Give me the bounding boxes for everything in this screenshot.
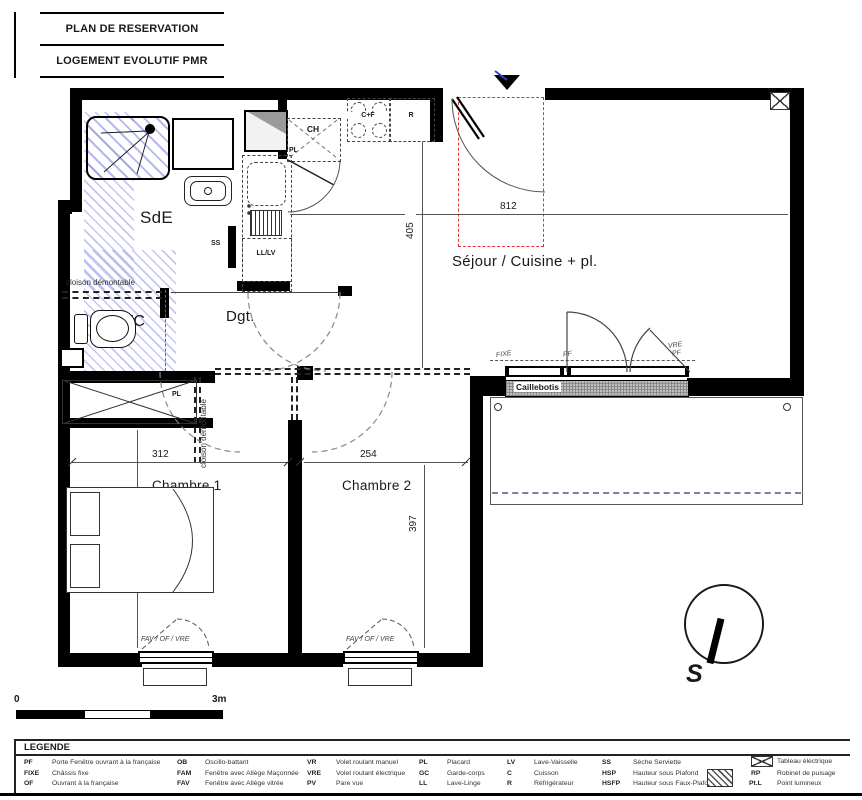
legend-label: Tableau électrique	[777, 758, 832, 765]
legend-label: Volet roulant électrique	[336, 770, 405, 777]
legend-abbr: HSFP	[602, 780, 620, 787]
legend-label: Lave-Vaisselle	[534, 759, 578, 766]
legend-label: Point lumineux	[777, 780, 822, 787]
shower-head	[145, 124, 155, 134]
legend-label: Lave-Linge	[447, 780, 481, 787]
legend-abbr: OF	[24, 780, 33, 787]
legend-label: Garde-corps	[447, 770, 485, 777]
legend-label: Ouvrant à la française	[52, 780, 119, 787]
legend-label: Fenêtre avec Allège vitrée	[205, 780, 284, 787]
plan-linework	[0, 0, 862, 800]
entry-door-leaf	[452, 97, 484, 139]
legend-label: Sèche Serviette	[633, 759, 681, 766]
placard-cross	[62, 380, 197, 424]
faucet-dot	[247, 204, 251, 208]
legend-abbr: PF	[24, 759, 33, 766]
shower-arm	[101, 131, 149, 174]
chambre2-door-arc	[312, 372, 392, 452]
legend-label: Réfrigérateur	[534, 780, 574, 787]
legend-label: Hauteur sous Faux-Plafond	[633, 780, 716, 787]
legend-abbr: OB	[177, 759, 187, 766]
dgt-door-arc	[248, 293, 326, 371]
legend-label: Cuisson	[534, 770, 559, 777]
legend-label: Fenêtre avec Allège Maçonnée	[205, 770, 299, 777]
legend-abbr: VR	[307, 759, 316, 766]
floor-plan: PLAN DE RESERVATION LOGEMENT EVOLUTIF PM…	[0, 0, 862, 800]
legend-top-rule	[14, 739, 850, 741]
terrasse-door-leaf	[650, 330, 690, 372]
legend-title-rule	[14, 754, 850, 756]
dim-ticks	[68, 458, 470, 466]
legend-abbr: SS	[602, 759, 611, 766]
legend-label: Châssis fixe	[52, 770, 89, 777]
window-tent-ch1	[142, 619, 209, 649]
dgt-door-arc	[262, 293, 340, 371]
entry-blue-tick	[495, 71, 507, 80]
legend-abbr: FIXE	[24, 770, 39, 777]
page-bottom-rule	[0, 793, 862, 796]
legend-abbr: R	[507, 780, 512, 787]
window-tent-ch2	[347, 619, 414, 649]
legend-abbr: GC	[419, 770, 429, 777]
bed-curve	[173, 489, 193, 592]
ch-door-leaf	[288, 160, 334, 185]
legend-label: Volet roulant manuel	[336, 759, 398, 766]
legend-abbr: LV	[507, 759, 515, 766]
chambre1-door-arc	[160, 372, 240, 452]
legend-abbr: Pt.L	[749, 780, 762, 787]
ch-cross	[289, 120, 337, 158]
legend-abbr: C	[507, 770, 512, 777]
legend-abbr: PL	[419, 759, 428, 766]
legend-abbr: VRE	[307, 770, 321, 777]
hsfp-hatch-swatch	[707, 769, 733, 787]
legend-label: Robinet de puisage	[777, 770, 836, 777]
legend-abbr: RP	[751, 770, 760, 777]
ch-door-arc	[288, 160, 340, 212]
legend-label: Oscillo-battant	[205, 759, 248, 766]
tableau-electrique-legend-icon	[751, 756, 773, 767]
legend-abbr: PV	[307, 780, 316, 787]
legend-abbr: FAV	[177, 780, 190, 787]
legend-title: LEGENDE	[24, 742, 70, 753]
entry-door-arc	[452, 99, 545, 192]
legend-abbr: HSP	[602, 770, 616, 777]
faucet-dot	[247, 211, 251, 215]
legend-label: Placard	[447, 759, 470, 766]
legend-label: Pare vue	[336, 780, 363, 787]
legend-label: Hauteur sous Plafond	[633, 770, 698, 777]
legend-left-rule	[14, 739, 16, 794]
legend-abbr: LL	[419, 780, 427, 787]
terrasse-door-arc	[630, 328, 650, 372]
legend-abbr: FAM	[177, 770, 191, 777]
legend-label: Porte Fenêtre ouvrant à la française	[52, 759, 160, 766]
terrasse-door-arc	[567, 312, 627, 372]
